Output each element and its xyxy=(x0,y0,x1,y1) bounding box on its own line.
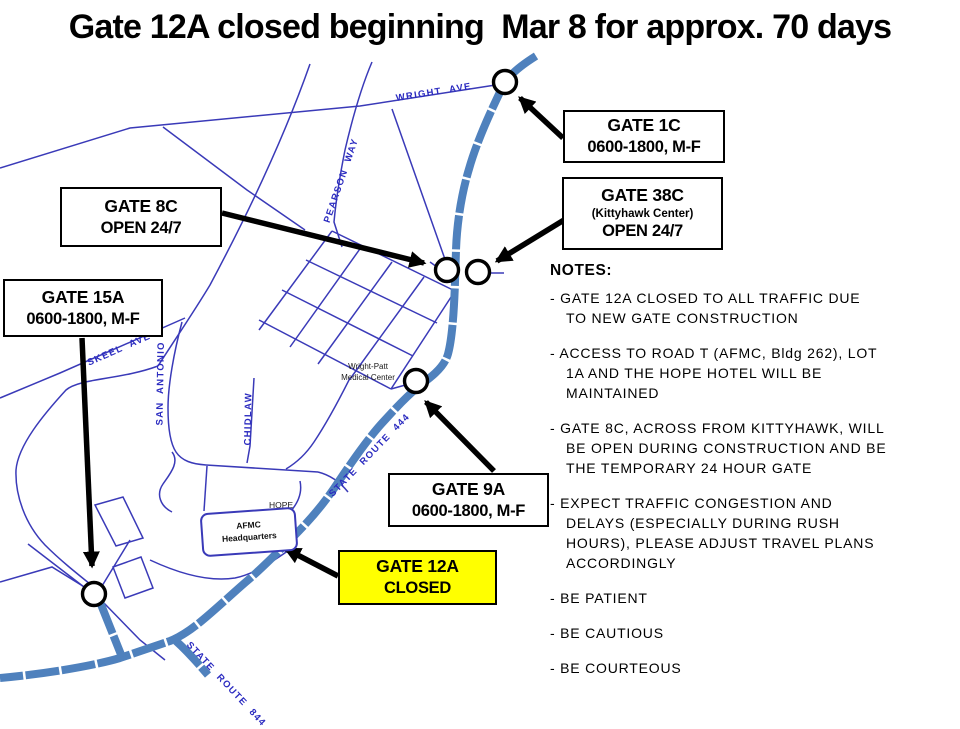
street xyxy=(286,378,350,469)
afmc-headquarters-box: AFMC Headquarters xyxy=(200,507,299,558)
gate-1c-arrow xyxy=(520,98,563,138)
gate-38c-callout: GATE 38C (Kittyhawk Center) OPEN 24/7 xyxy=(562,177,723,250)
gate-15a-marker xyxy=(83,583,106,606)
gate-12a-name: GATE 12A xyxy=(376,556,459,578)
note-item: - GATE 12A CLOSED TO ALL TRAFFIC DUE TO … xyxy=(550,288,954,328)
gate-1c-schedule: 0600-1800, M-F xyxy=(587,137,700,157)
gate-38c-schedule: OPEN 24/7 xyxy=(602,221,683,241)
notes-heading: NOTES: xyxy=(550,262,954,280)
street xyxy=(28,544,84,587)
road-label-chidlaw: CHIDLAW xyxy=(243,392,255,446)
medical-center-line1: Wright-Patt xyxy=(329,362,407,373)
gate-8c-name: GATE 8C xyxy=(104,196,177,218)
parking-lot xyxy=(113,557,153,598)
note-item: - BE COURTEOUS xyxy=(550,658,954,678)
gate-15a-schedule: 0600-1800, M-F xyxy=(26,309,139,329)
gate-12a-arrow xyxy=(286,549,338,576)
gate-38c-name: GATE 38C xyxy=(601,185,684,207)
gate-38c-subtitle: (Kittyhawk Center) xyxy=(592,207,694,221)
gate-15a-name: GATE 15A xyxy=(42,287,125,309)
gate-8c-marker xyxy=(436,259,459,282)
gate-1c-callout: GATE 1C 0600-1800, M-F xyxy=(563,110,725,163)
medical-center-label: Wright-Patt Medical Center xyxy=(329,362,407,384)
notes-panel: NOTES: - GATE 12A CLOSED TO ALL TRAFFIC … xyxy=(550,262,954,693)
note-item: - ACCESS TO ROAD T (AFMC, Bldg 262), LOT… xyxy=(550,343,954,403)
note-item: - EXPECT TRAFFIC CONGESTION AND DELAYS (… xyxy=(550,493,954,573)
street xyxy=(204,466,207,511)
note-item: - GATE 8C, ACROSS FROM KITTYHAWK, WILL B… xyxy=(550,418,954,478)
gate-9a-callout: GATE 9A 0600-1800, M-F xyxy=(388,473,549,527)
gate-38c-arrow xyxy=(497,220,564,261)
afmc-line2: Headquarters xyxy=(222,530,278,546)
gate-15a-callout: GATE 15A 0600-1800, M-F xyxy=(3,279,163,337)
gate-9a-schedule: 0600-1800, M-F xyxy=(412,501,525,521)
medical-center-line2: Medical Center xyxy=(329,373,407,384)
gate-12a-status: CLOSED xyxy=(384,578,451,598)
gate-8c-callout: GATE 8C OPEN 24/7 xyxy=(60,187,222,247)
gate-38c-marker xyxy=(467,261,490,284)
grid-street xyxy=(290,246,362,347)
gate-8c-schedule: OPEN 24/7 xyxy=(101,218,182,238)
gate-9a-arrow xyxy=(426,402,494,471)
road-label-san-antonio: SAN ANTONIO xyxy=(155,341,167,425)
parking-lot xyxy=(95,497,143,546)
gate-15a-arrow xyxy=(82,338,92,566)
street xyxy=(160,452,175,512)
gate-9a-name: GATE 9A xyxy=(432,479,505,501)
gate-12a-closed-callout: GATE 12A CLOSED xyxy=(338,550,497,605)
note-item: - BE CAUTIOUS xyxy=(550,623,954,643)
gate-1c-name: GATE 1C xyxy=(607,115,680,137)
gate-1c-marker xyxy=(494,71,517,94)
grid-street xyxy=(259,231,332,330)
note-item: - BE PATIENT xyxy=(550,588,954,608)
gate8c-access-road xyxy=(392,109,447,265)
gate-9a-marker xyxy=(405,370,428,393)
